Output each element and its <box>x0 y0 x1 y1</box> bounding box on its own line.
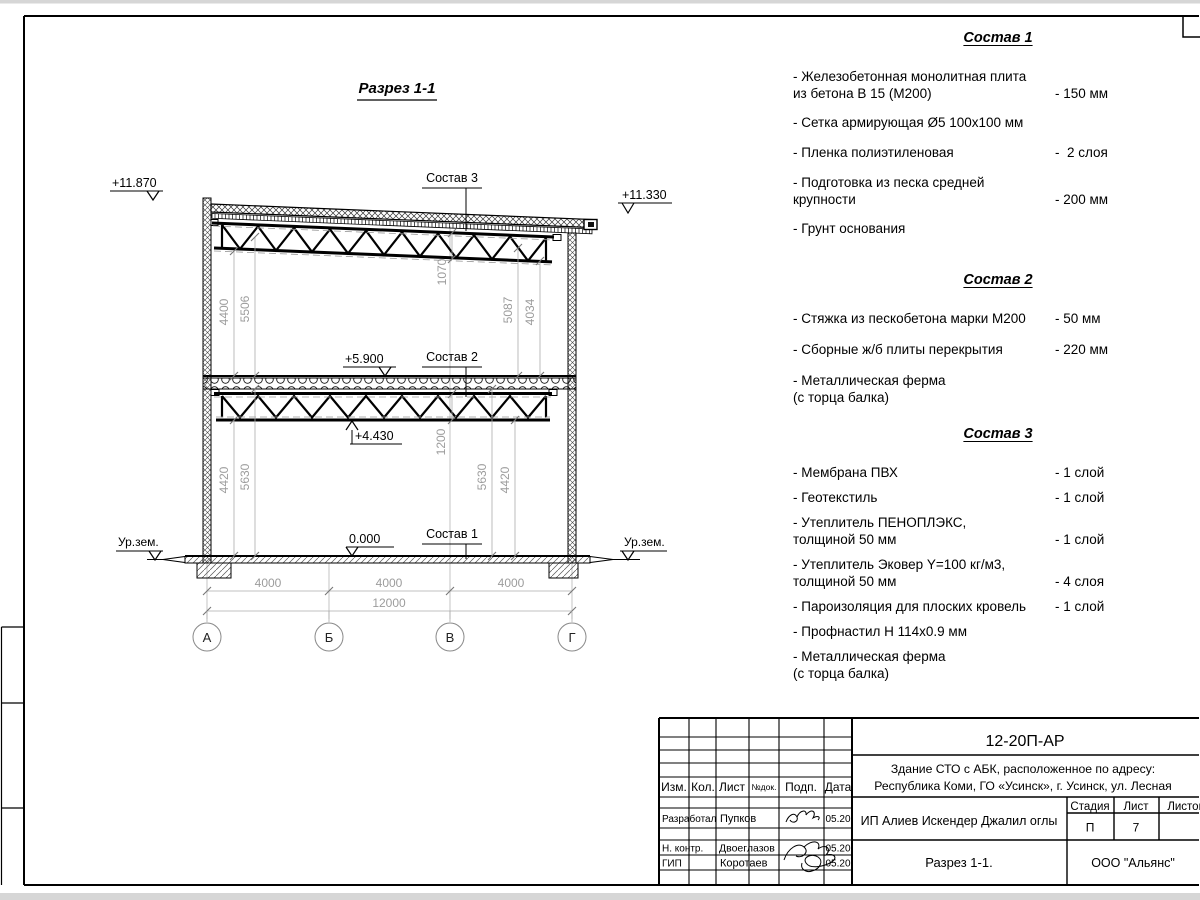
item-name: - Пароизоляция для плоских кровель <box>793 598 1055 615</box>
item-name: - Геотекстиль <box>793 489 1055 506</box>
item-value: - 220 мм <box>1055 341 1200 358</box>
item-value: - 4 слоя <box>1055 573 1200 590</box>
item-name: - Металлическая ферма (с торца балка) <box>793 372 1055 406</box>
dim-bay-3: 4000 <box>498 576 525 590</box>
composition-item: - Железобетонная монолитная плита из бет… <box>793 68 1200 102</box>
dim-low-right-inner: 5630 <box>475 463 489 490</box>
ground-slab <box>147 556 640 578</box>
row-date-1: 05.20 <box>825 844 850 855</box>
item-name: - Мембрана ПВХ <box>793 464 1055 481</box>
item-value: - 200 мм <box>1055 191 1200 208</box>
composition-list-1: Состав 1 - Железобетонная монолитная пли… <box>793 30 1200 250</box>
dim-bay-1: 4000 <box>255 576 282 590</box>
section-view: Разрез 1-1 <box>110 80 672 651</box>
drawing-sheet: Разрез 1-1 <box>0 0 1200 900</box>
stage-value: П <box>1086 821 1095 835</box>
item-value: - 1 слой <box>1055 598 1200 615</box>
dim-up-left-outer: 5506 <box>238 295 252 322</box>
item-name: - Утеплитель ПЕНОПЛЭКС, толщиной 50 мм <box>793 514 1055 548</box>
dim-low-right-outer: 4420 <box>498 466 512 493</box>
item-name: - Стяжка из пескобетона марки М200 <box>793 310 1055 327</box>
composition-item: - Стяжка из пескобетона марки М200 - 50 … <box>793 310 1200 327</box>
ground-level-left: Ур.зем. <box>116 535 163 560</box>
svg-text:Б: Б <box>325 630 334 645</box>
item-value: - 1 слой <box>1055 531 1200 548</box>
item-value: - 1 слой <box>1055 464 1200 481</box>
foundation-left <box>197 563 231 578</box>
row-name-0: Пупков <box>720 813 756 825</box>
composition-item: - Пароизоляция для плоских кровель - 1 с… <box>793 598 1200 615</box>
composition-item: - Утеплитель Эковер Y=100 кг/м3, толщино… <box>793 556 1200 590</box>
wall-right <box>568 233 576 563</box>
dim-low-left-outer: 5630 <box>238 463 252 490</box>
sheet-value: 7 <box>1133 821 1140 835</box>
grade-wing-right <box>590 557 613 563</box>
level-mark-zero: 0.000 <box>346 532 394 556</box>
composition-3-title: Состав 3 <box>793 426 1200 442</box>
dim-up-left-inner: 4400 <box>217 298 231 325</box>
callout-sostav1: Состав 1 <box>426 527 478 541</box>
horizontal-dimensions: 4000 4000 4000 12000 А Б В Г <box>193 576 586 651</box>
item-name: - Грунт основания <box>793 220 1055 237</box>
dim-up-right-inner: 5087 <box>501 296 515 323</box>
svg-text:+11.870: +11.870 <box>112 176 157 190</box>
row-name-2: Коротаев <box>720 858 768 870</box>
titleblock-rows: Разработал Пупков 05.20 Н. контр. Двоегл… <box>662 811 851 872</box>
composition-2-title: Состав 2 <box>793 272 1200 288</box>
col-podp: Подп. <box>785 780 817 794</box>
composition-item: - Профнастил Н 114х0.9 мм <box>793 623 1200 640</box>
svg-text:+4.430: +4.430 <box>355 429 394 443</box>
title-block: Изм. Кол. Лист №док. Подп. Дата Разработ… <box>659 718 1200 885</box>
composition-item: - Металлическая ферма (с торца балка) <box>793 648 1200 682</box>
item-name: - Профнастил Н 114х0.9 мм <box>793 623 1055 640</box>
frame-side-boxes <box>2 627 25 885</box>
ground-level-right: Ур.зем. <box>620 535 667 560</box>
row-date-2: 05.20 <box>825 859 850 870</box>
item-name: - Сборные ж/б плиты перекрытия <box>793 341 1055 358</box>
doc-code: 12-20П-АР <box>985 733 1064 750</box>
composition-item: - Геотекстиль - 1 слой <box>793 489 1200 506</box>
floor-truss <box>211 390 557 421</box>
item-name: - Пленка полиэтиленовая <box>793 144 1055 161</box>
svg-text:В: В <box>446 630 455 645</box>
composition-item: - Металлическая ферма (с торца балка) <box>793 372 1200 406</box>
sheet-title: Разрез 1-1. <box>925 855 992 870</box>
item-name: - Подготовка из песка средней крупности <box>793 174 1055 208</box>
item-name: - Железобетонная монолитная плита из бет… <box>793 68 1055 102</box>
callout-sostav2: Состав 2 <box>426 350 478 364</box>
level-mark-truss2: +4.430 <box>346 421 402 444</box>
composition-item: - Пленка полиэтиленовая - 2 слоя <box>793 144 1200 161</box>
svg-text:+5.900: +5.900 <box>345 352 384 366</box>
composition-item: - Утеплитель ПЕНОПЛЭКС, толщиной 50 мм -… <box>793 514 1200 548</box>
dim-total: 12000 <box>372 596 406 610</box>
composition-item: - Сетка армирующая Ø5 100х100 мм <box>793 114 1200 131</box>
col-ndoc: №док. <box>752 782 777 792</box>
svg-text:Ур.зем.: Ур.зем. <box>118 535 159 549</box>
item-name: - Утеплитель Эковер Y=100 кг/м3, толщино… <box>793 556 1055 590</box>
composition-item: - Мембрана ПВХ - 1 слой <box>793 464 1200 481</box>
item-value: - 1 слой <box>1055 489 1200 506</box>
grid-bubbles: А Б В Г <box>193 611 586 651</box>
composition-item: - Подготовка из песка средней крупности … <box>793 174 1200 208</box>
floor-slab <box>203 376 576 389</box>
project-address-line1: Здание СТО с АБК, расположенное по адрес… <box>891 762 1155 776</box>
client-name: ИП Алиев Искендер Джалил оглы <box>861 814 1058 828</box>
composition-item: - Грунт основания <box>793 220 1200 237</box>
sheets-label: Листов <box>1167 801 1200 813</box>
level-mark-floor2: +5.900 <box>343 352 396 376</box>
composition-list-2: Состав 2 - Стяжка из пескобетона марки М… <box>793 272 1200 419</box>
row-role-0: Разработал <box>662 813 717 825</box>
composition-1-title: Состав 1 <box>793 30 1200 46</box>
dim-low-left-inner: 4420 <box>217 466 231 493</box>
item-value: - 2 слоя <box>1055 144 1200 161</box>
roof <box>211 204 597 234</box>
titleblock-columns: Изм. Кол. Лист №док. Подп. Дата <box>661 780 851 794</box>
svg-text:+11.330: +11.330 <box>622 188 667 202</box>
grade-wing-left <box>163 557 185 563</box>
col-kol: Кол. <box>691 780 715 794</box>
callout-sostav3: Состав 3 <box>426 171 478 185</box>
project-address-line2: Республика Коми, ГО «Усинск», г. Усинск,… <box>874 779 1172 793</box>
composition-list-3: Состав 3 - Мембрана ПВХ - 1 слой - Геоте… <box>793 426 1200 690</box>
company-name: ООО "Альянс" <box>1091 856 1175 870</box>
dim-up-right-outer: 4034 <box>523 298 537 325</box>
item-name: - Сетка армирующая Ø5 100х100 мм <box>793 114 1055 131</box>
col-data: Дата <box>825 780 852 794</box>
svg-text:Г: Г <box>568 630 575 645</box>
row-role-2: ГИП <box>662 859 682 870</box>
row-date-0: 05.20 <box>825 814 850 825</box>
foundation-right <box>549 563 578 578</box>
roof-edge-detail <box>588 222 594 227</box>
row-name-1: Двоеглазов <box>719 843 775 855</box>
level-mark-left-top: +11.870 <box>110 176 163 200</box>
col-list: Лист <box>719 780 746 794</box>
svg-text:А: А <box>203 630 212 645</box>
item-value: - 150 мм <box>1055 85 1200 102</box>
section-title: Разрез 1-1 <box>358 80 435 97</box>
svg-text:Ур.зем.: Ур.зем. <box>624 535 665 549</box>
item-name: - Металлическая ферма (с торца балка) <box>793 648 1055 682</box>
signature-developer <box>786 811 819 822</box>
composition-item: - Сборные ж/б плиты перекрытия - 220 мм <box>793 341 1200 358</box>
item-value: - 50 мм <box>1055 310 1200 327</box>
col-izm: Изм. <box>661 780 687 794</box>
dim-up-mid: 1070 <box>435 258 449 285</box>
stage-label: Стадия <box>1070 801 1109 813</box>
dim-bay-2: 4000 <box>376 576 403 590</box>
level-mark-right-top: +11.330 <box>618 188 672 213</box>
row-role-1: Н. контр. <box>662 844 703 855</box>
sheet-label: Лист <box>1124 801 1150 813</box>
svg-text:0.000: 0.000 <box>349 532 380 546</box>
dim-low-mid: 1200 <box>434 428 448 455</box>
